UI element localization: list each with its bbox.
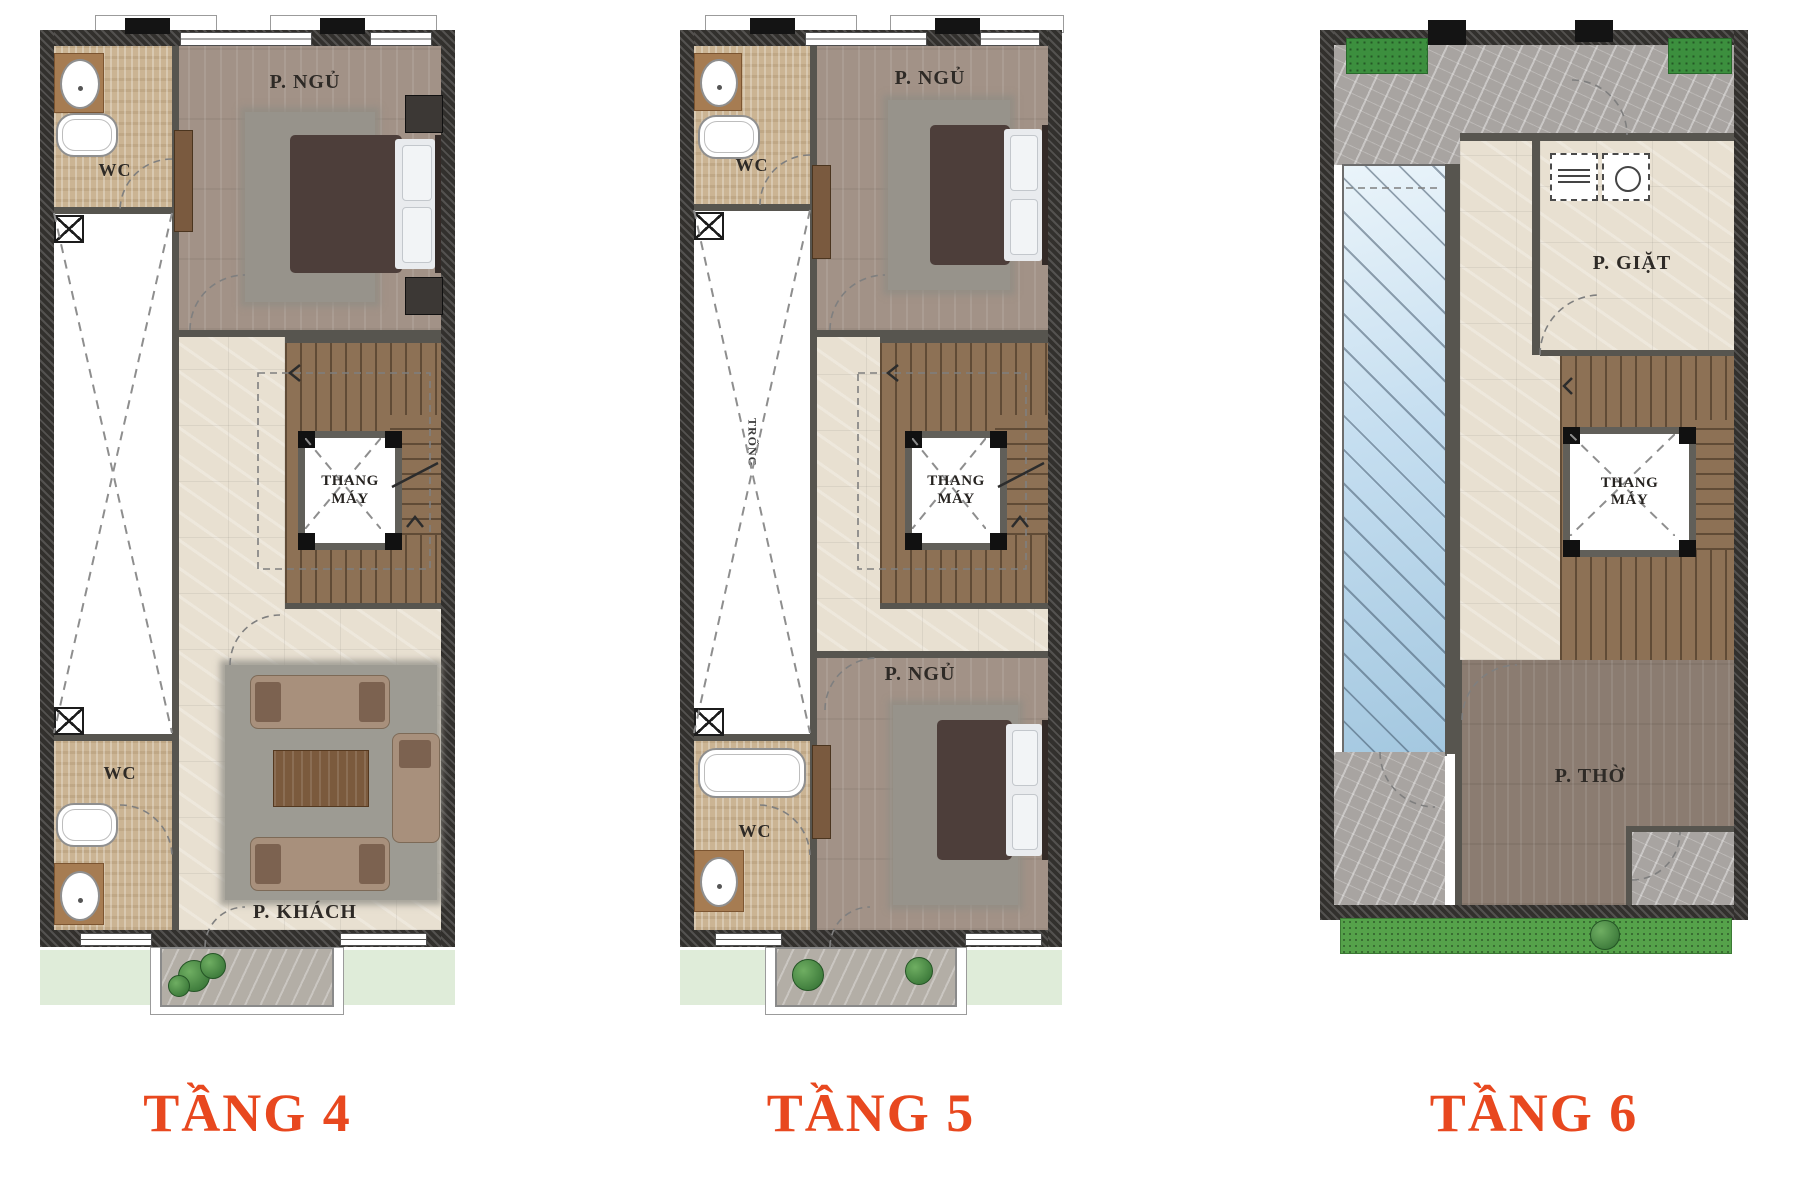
nightstand [405, 95, 443, 133]
wall-right [1048, 30, 1062, 947]
bed-pillow [1010, 199, 1038, 255]
sofa-pillow [255, 682, 281, 722]
dryer-machine [1602, 153, 1650, 201]
window [980, 32, 1040, 46]
caption-tang-5: TẦNG 5 [680, 1082, 1062, 1144]
greenery [40, 950, 158, 1005]
bed-pillow [1012, 794, 1038, 850]
elevator-label: THANG MÁY [912, 438, 1000, 543]
nightstand [405, 277, 443, 315]
elevator-shaft: THANG MÁY [298, 431, 402, 550]
room-label-bedroom: P. NGỦ [205, 71, 405, 94]
partition [54, 734, 172, 741]
bed [937, 720, 1012, 860]
room-label-wc: WC [702, 155, 802, 176]
skylight-glass [1342, 164, 1447, 756]
caption-tang-4: TẦNG 4 [40, 1082, 455, 1144]
sofa [250, 675, 390, 729]
wall-pillar [1575, 20, 1613, 42]
window [80, 933, 152, 946]
washing-machine [1550, 153, 1598, 201]
stair-wall [285, 337, 441, 343]
greenery [332, 950, 455, 1005]
washer-vents [1558, 167, 1590, 183]
corner-balcony [1632, 832, 1734, 905]
wardrobe [812, 165, 831, 259]
stair-wall [880, 603, 1048, 609]
floorplan-sheet: THANG MÁY [0, 0, 1800, 1200]
elevator-shaft: THANG MÁY [1563, 427, 1696, 557]
bed-pillow [1010, 135, 1038, 191]
void-label: TRỐNG [745, 413, 760, 473]
bed [930, 125, 1010, 265]
floorplan-tang-5: THANG MÁY WC P. N [680, 15, 1062, 1020]
wardrobe [174, 130, 193, 232]
window [715, 933, 782, 946]
wardrobe [812, 745, 831, 839]
dryer-drum [1615, 166, 1641, 192]
partition [1455, 660, 1462, 905]
window [340, 933, 427, 946]
partition [54, 207, 172, 214]
sofa [250, 837, 390, 891]
room-label-bedroom: P. NGỦ [830, 67, 1030, 90]
lower-terrace-floor [1334, 752, 1445, 905]
wall-left [40, 30, 54, 947]
partition [817, 651, 1048, 658]
plant [1590, 920, 1620, 950]
floorplan-tang-6: THANG MÁY P. GIẶT P. THỜ [1320, 20, 1748, 980]
wall-pillar [320, 18, 365, 34]
bed-pillow [402, 207, 432, 263]
partition [1532, 140, 1540, 355]
partition [817, 330, 1048, 337]
greenery [960, 950, 1062, 1005]
void-shaft [694, 210, 810, 735]
plant [792, 959, 824, 991]
bed-headboard [435, 135, 441, 273]
planter-box [1668, 38, 1732, 74]
plant [168, 975, 190, 997]
planter-box [1346, 38, 1428, 74]
wall-left [1320, 30, 1334, 920]
partition [694, 204, 810, 211]
room-label-laundry: P. GIẶT [1537, 252, 1727, 275]
floorplan-tang-4: THANG MÁY [40, 15, 455, 1015]
bed-pillow [1012, 730, 1038, 786]
wall-pillar [750, 18, 795, 34]
sofa-pillow [255, 844, 281, 884]
window [965, 933, 1042, 946]
elevator-label: THANG MÁY [1570, 434, 1689, 550]
bed-pillow [402, 145, 432, 201]
room-label-bedroom: P. NGỦ [820, 663, 1020, 686]
bathtub [698, 115, 760, 159]
shaft-marker [694, 212, 724, 240]
wall-right [441, 30, 455, 947]
window [805, 32, 927, 46]
elevator-shaft: THANG MÁY [905, 431, 1007, 550]
room-label-wc: WC [705, 821, 805, 842]
greenery [680, 950, 775, 1005]
sink [700, 59, 738, 107]
wall-pillar [1428, 20, 1466, 48]
bathtub [698, 748, 806, 798]
room-label-wc: WC [70, 763, 170, 784]
wall-pillar [935, 18, 980, 34]
wall-right [1734, 30, 1748, 920]
partition [1460, 133, 1734, 141]
plant [905, 957, 933, 985]
sink [60, 871, 100, 921]
sofa-pillow [359, 844, 385, 884]
stair-wall [880, 337, 1048, 343]
bed-headboard [1042, 125, 1048, 265]
partition [1626, 826, 1632, 905]
caption-tang-6: TẦNG 6 [1320, 1082, 1748, 1144]
room-label-wc: WC [65, 160, 165, 181]
window [180, 32, 312, 46]
void-shaft [54, 213, 172, 735]
sink [60, 59, 100, 109]
shaft-marker [694, 708, 724, 736]
wall-pillar [125, 18, 170, 34]
shaft-marker [54, 215, 84, 243]
plant [200, 953, 226, 979]
window [370, 32, 432, 46]
elevator-label: THANG MÁY [305, 438, 395, 543]
partition [179, 330, 441, 337]
bed [290, 135, 402, 273]
grass-strip [1340, 918, 1732, 954]
partition [1626, 826, 1734, 832]
room-label-living: P. KHÁCH [205, 901, 405, 924]
coffee-table [273, 750, 369, 807]
armchair [392, 733, 440, 843]
bed-headboard [1042, 720, 1048, 860]
bathtub [56, 803, 118, 847]
sofa-pillow [359, 682, 385, 722]
room-label-worship: P. THỜ [1490, 765, 1690, 788]
wall-left [680, 30, 694, 947]
sofa-pillow [399, 740, 431, 768]
shaft-marker [54, 707, 84, 735]
stair-wall [285, 603, 441, 609]
bathtub [56, 113, 118, 157]
sink [700, 857, 738, 907]
